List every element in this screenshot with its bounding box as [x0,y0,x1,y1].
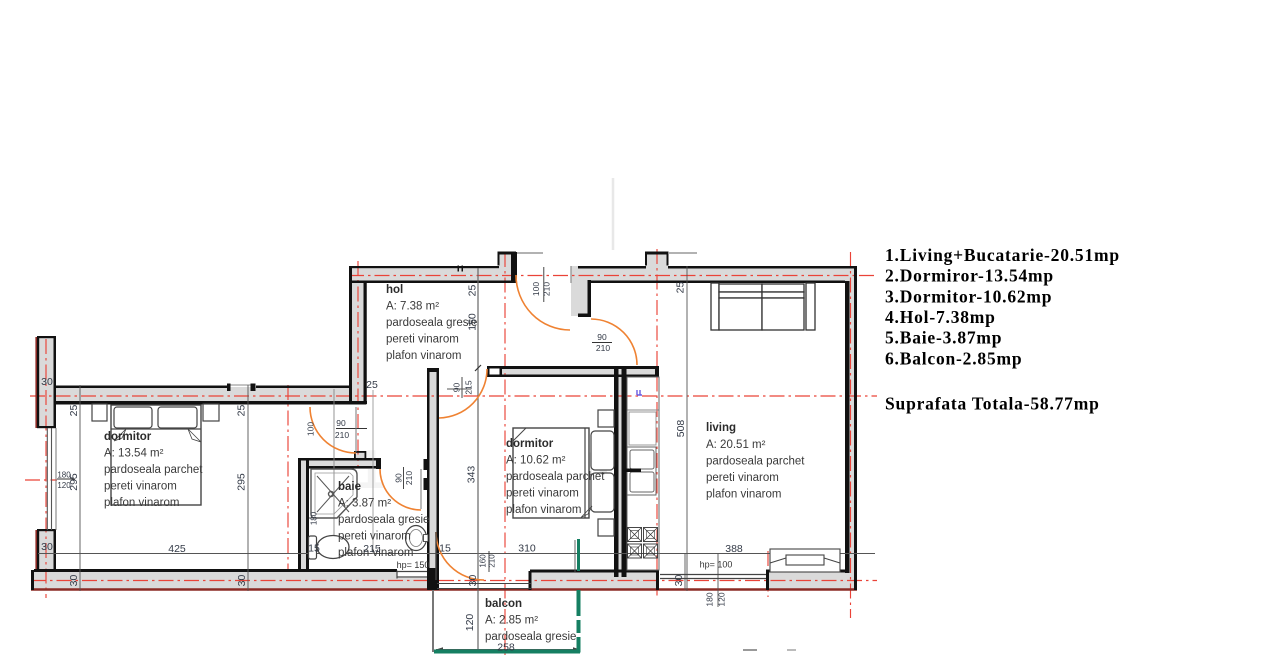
svg-text:90: 90 [336,418,346,428]
svg-text:120: 120 [464,614,476,632]
svg-text:pardoseala gresie: pardoseala gresie [338,514,429,526]
svg-text:dormitor: dormitor [506,438,554,450]
svg-text:15: 15 [308,543,320,555]
svg-text:pereti vinarom: pereti vinarom [706,472,779,484]
svg-text:pardoseala parchet: pardoseala parchet [506,471,605,483]
svg-text:pereti vinarom: pereti vinarom [104,481,177,493]
svg-text:3.Dormitor-10.62mp: 3.Dormitor-10.62mp [885,287,1052,307]
svg-text:90: 90 [597,332,607,342]
svg-text:A: 3.87 m²: A: 3.87 m² [338,498,391,510]
svg-text:215: 215 [464,380,474,394]
svg-text:balcon: balcon [485,598,522,610]
svg-text:plafon vinarom: plafon vinarom [386,350,461,362]
svg-text:210: 210 [335,430,349,440]
svg-text:25: 25 [68,405,80,417]
svg-text:5.Baie-3.87mp: 5.Baie-3.87mp [885,328,1002,348]
svg-text:hp= 150: hp= 150 [397,560,430,570]
svg-text:388: 388 [725,543,743,555]
svg-text:4.Hol-7.38mp: 4.Hol-7.38mp [885,307,996,327]
svg-text:180: 180 [705,592,715,606]
svg-text:90: 90 [394,473,404,483]
svg-text:210: 210 [596,343,610,353]
svg-text:100: 100 [306,422,316,436]
svg-text:pardoseala gresie: pardoseala gresie [386,317,477,329]
svg-text:A: 2.85 m²: A: 2.85 m² [485,615,538,627]
svg-text:dormitor: dormitor [104,431,152,443]
svg-text:1.Living+Bucatarie-20.51mp: 1.Living+Bucatarie-20.51mp [885,245,1120,265]
svg-text:A: 7.38 m²: A: 7.38 m² [386,301,439,313]
svg-text:295: 295 [68,473,80,491]
svg-text:pereti vinarom: pereti vinarom [338,531,411,543]
svg-text:295: 295 [236,473,248,491]
svg-text:25: 25 [467,285,479,297]
svg-text:30: 30 [236,575,248,587]
svg-text:30: 30 [41,541,53,553]
svg-text:25: 25 [675,282,687,294]
svg-text:343: 343 [466,466,478,484]
svg-text:hol: hol [386,284,403,296]
svg-text:pereti vinarom: pereti vinarom [506,488,579,500]
svg-text:425: 425 [168,543,186,555]
svg-text:hp= 100: hp= 100 [700,560,733,570]
svg-text:30: 30 [41,376,53,388]
svg-text:30: 30 [68,575,80,587]
svg-text:15: 15 [439,543,451,555]
svg-text:pereti vinarom: pereti vinarom [386,334,459,346]
svg-text:210: 210 [488,554,497,568]
svg-text:2.Dormiror-13.54mp: 2.Dormiror-13.54mp [885,266,1054,286]
svg-text:pardoseala parchet: pardoseala parchet [706,456,805,468]
svg-text:310: 310 [518,543,536,555]
svg-text:210: 210 [404,471,414,485]
svg-text:215: 215 [363,543,381,555]
svg-text:25: 25 [236,405,248,417]
svg-text:150: 150 [467,313,479,331]
svg-text:6.Balcon-2.85mp: 6.Balcon-2.85mp [885,349,1022,369]
svg-text:180: 180 [310,511,319,525]
svg-text:25: 25 [366,379,378,391]
svg-text:pardoseala parchet: pardoseala parchet [104,464,203,476]
svg-text:120: 120 [717,592,727,606]
svg-text:160: 160 [479,554,488,568]
svg-text:30: 30 [467,575,479,587]
svg-text:258: 258 [497,642,515,654]
svg-text:plafon vinarom: plafon vinarom [506,504,581,516]
svg-text:100: 100 [531,282,541,296]
svg-text:508: 508 [675,420,687,438]
svg-text:plafon vinarom: plafon vinarom [706,489,781,501]
svg-text:A: 13.54 m²: A: 13.54 m² [104,448,164,460]
svg-text:plafon vinarom: plafon vinarom [104,497,179,509]
svg-text:210: 210 [542,282,552,296]
svg-text:A: 20.51 m²: A: 20.51 m² [706,439,766,451]
svg-text:baie: baie [338,481,361,493]
svg-text:30: 30 [673,575,685,587]
svg-text:A: 10.62 m²: A: 10.62 m² [506,455,566,467]
svg-text:Suprafata Totala-58.77mp: Suprafata Totala-58.77mp [885,394,1100,414]
svg-text:90: 90 [452,383,462,393]
svg-text:living: living [706,422,736,434]
